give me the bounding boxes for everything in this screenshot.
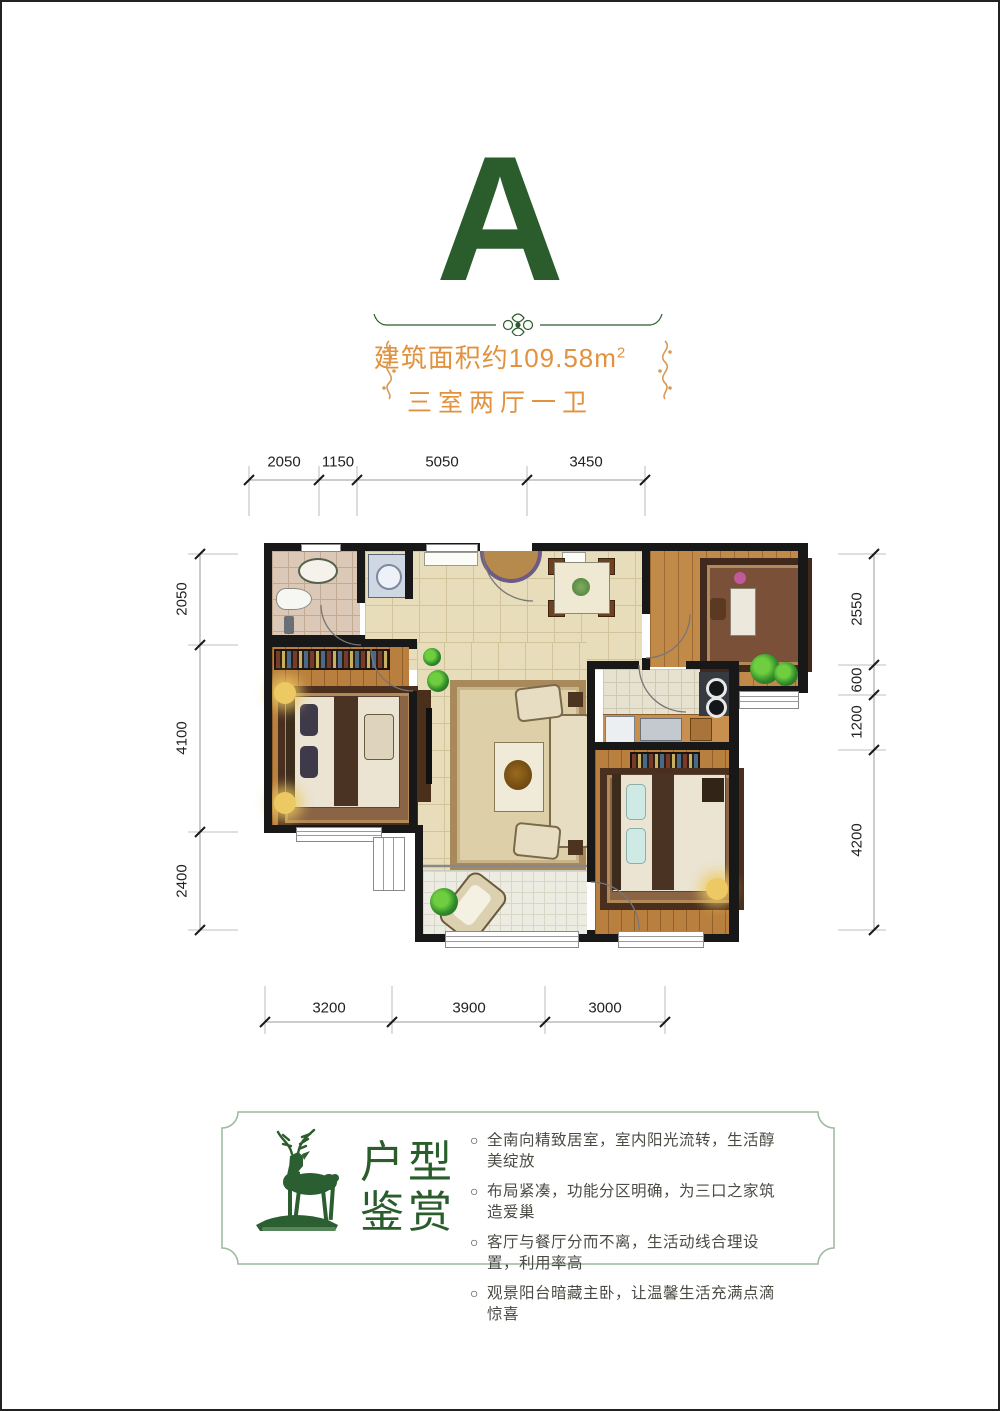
layout-text: 三室两厅一卫 (2, 383, 998, 419)
window-icon (373, 837, 405, 891)
wall (415, 868, 423, 942)
bedroom2-desk-icon (730, 588, 756, 636)
dim-label: 2400 (174, 864, 191, 897)
window-icon (296, 827, 382, 842)
wall (532, 543, 808, 551)
entry-cabinet-icon (424, 552, 478, 566)
headboard-icon (612, 774, 621, 890)
window-icon (426, 544, 478, 552)
bullet-text: 观景阳台暗藏主卧，让温馨生活充满点滴惊喜 (487, 1283, 780, 1325)
lamp-icon (274, 792, 296, 814)
bullet-marker-icon: ○ (470, 1181, 479, 1202)
pillow-icon (626, 828, 646, 864)
burner-icon (706, 678, 727, 699)
wall (798, 543, 808, 693)
divider-ornament-icon (370, 306, 666, 336)
plant-icon (774, 662, 798, 686)
shower-icon (284, 616, 294, 634)
plant-icon (423, 648, 441, 666)
sink-icon (298, 558, 338, 584)
right-flourish-icon (654, 338, 676, 402)
wall (357, 543, 365, 603)
toilet-icon (276, 588, 312, 610)
dim-label: 5050 (425, 454, 458, 471)
wall (587, 661, 595, 882)
bullet-text: 全南向精致居室，室内阳光流转，生活醇美绽放 (487, 1130, 780, 1172)
appreciation-title: 户型 鉴赏 (360, 1138, 470, 1237)
lamp-icon (274, 682, 296, 704)
bed-runner-icon (652, 774, 674, 890)
dim-label: 3450 (569, 454, 602, 471)
bullet-text: 客厅与餐厅分而不离，生活动线合理设置，利用率高 (487, 1232, 780, 1274)
dim-label: 1200 (849, 705, 866, 738)
wall (686, 661, 739, 669)
fridge-icon (605, 716, 635, 744)
lamp-icon (706, 878, 728, 900)
floorplan-page: A 建筑面积约109.58m2 三室两厅一卫 (0, 0, 1000, 1411)
appreciation-title-line2: 鉴赏 (360, 1188, 470, 1238)
wall (642, 658, 650, 670)
summary-block: 建筑面积约109.58m2 三室两厅一卫 (2, 338, 998, 419)
dim-label: 1150 (322, 454, 354, 471)
kitchen-sink-icon (640, 718, 682, 741)
wall (642, 543, 650, 614)
desk-chair-icon (710, 598, 726, 620)
cutting-board-icon (690, 718, 712, 741)
plant-icon (430, 888, 458, 916)
side-table-icon (568, 840, 583, 855)
table-plant-icon (504, 760, 532, 790)
wall (409, 691, 417, 833)
armchair-icon (514, 683, 564, 722)
dim-label: 3200 (312, 1000, 345, 1017)
dim-label: 2050 (267, 454, 300, 471)
wall (264, 639, 417, 647)
bedside-chair-icon (364, 714, 394, 760)
window-icon (301, 544, 341, 552)
plant-icon (427, 670, 449, 692)
dining-centerpiece-icon (572, 578, 590, 596)
dim-label: 3000 (588, 1000, 621, 1017)
wall (595, 661, 639, 669)
side-table-icon (568, 692, 583, 707)
bullet-item: ○布局紧凑，功能分区明确，为三口之家筑造爱巢 (470, 1181, 780, 1223)
bed-runner-icon (334, 696, 358, 806)
wall (264, 543, 272, 833)
bullet-text: 布局紧凑，功能分区明确，为三口之家筑造爱巢 (487, 1181, 780, 1223)
headboard-icon (286, 696, 295, 806)
window-icon (445, 931, 579, 948)
bedroom1-bookshelf-icon (274, 649, 390, 670)
appreciation-bullets: ○全南向精致居室，室内阳光流转，生活醇美绽放 ○布局紧凑，功能分区明确，为三口之… (470, 1130, 780, 1334)
pillow-icon (626, 784, 646, 820)
nightstand-icon (702, 778, 724, 802)
armchair-icon (512, 822, 561, 861)
pillow-icon (300, 704, 318, 736)
washing-machine-drum-icon (376, 564, 402, 590)
bullet-marker-icon: ○ (470, 1232, 479, 1253)
dim-label: 4100 (174, 721, 191, 754)
bullet-marker-icon: ○ (470, 1130, 479, 1151)
dim-label: 2050 (174, 582, 191, 615)
wall (729, 661, 739, 942)
unit-letter: A (2, 130, 998, 308)
pillow-icon (300, 746, 318, 778)
dim-label: 4200 (849, 823, 866, 856)
wall (595, 742, 729, 750)
dim-label: 2550 (849, 592, 866, 625)
dim-label: 600 (849, 667, 866, 692)
bullet-item: ○观景阳台暗藏主卧，让温馨生活充满点滴惊喜 (470, 1283, 780, 1325)
deer-icon (248, 1128, 344, 1232)
flowers-icon (734, 572, 746, 584)
dim-label: 3900 (452, 1000, 485, 1017)
area-text: 建筑面积约109.58m2 (2, 338, 998, 375)
window-icon (739, 691, 799, 709)
window-icon (618, 931, 704, 948)
tv-icon (426, 708, 432, 784)
appreciation-title-line1: 户型 (360, 1138, 470, 1188)
bullet-item: ○全南向精致居室，室内阳光流转，生活醇美绽放 (470, 1130, 780, 1172)
bullet-item: ○客厅与餐厅分而不离，生活动线合理设置，利用率高 (470, 1232, 780, 1274)
left-flourish-icon (378, 338, 400, 402)
burner-icon (706, 697, 727, 718)
wall (409, 639, 417, 649)
wall (405, 543, 413, 599)
bullet-marker-icon: ○ (470, 1283, 479, 1304)
